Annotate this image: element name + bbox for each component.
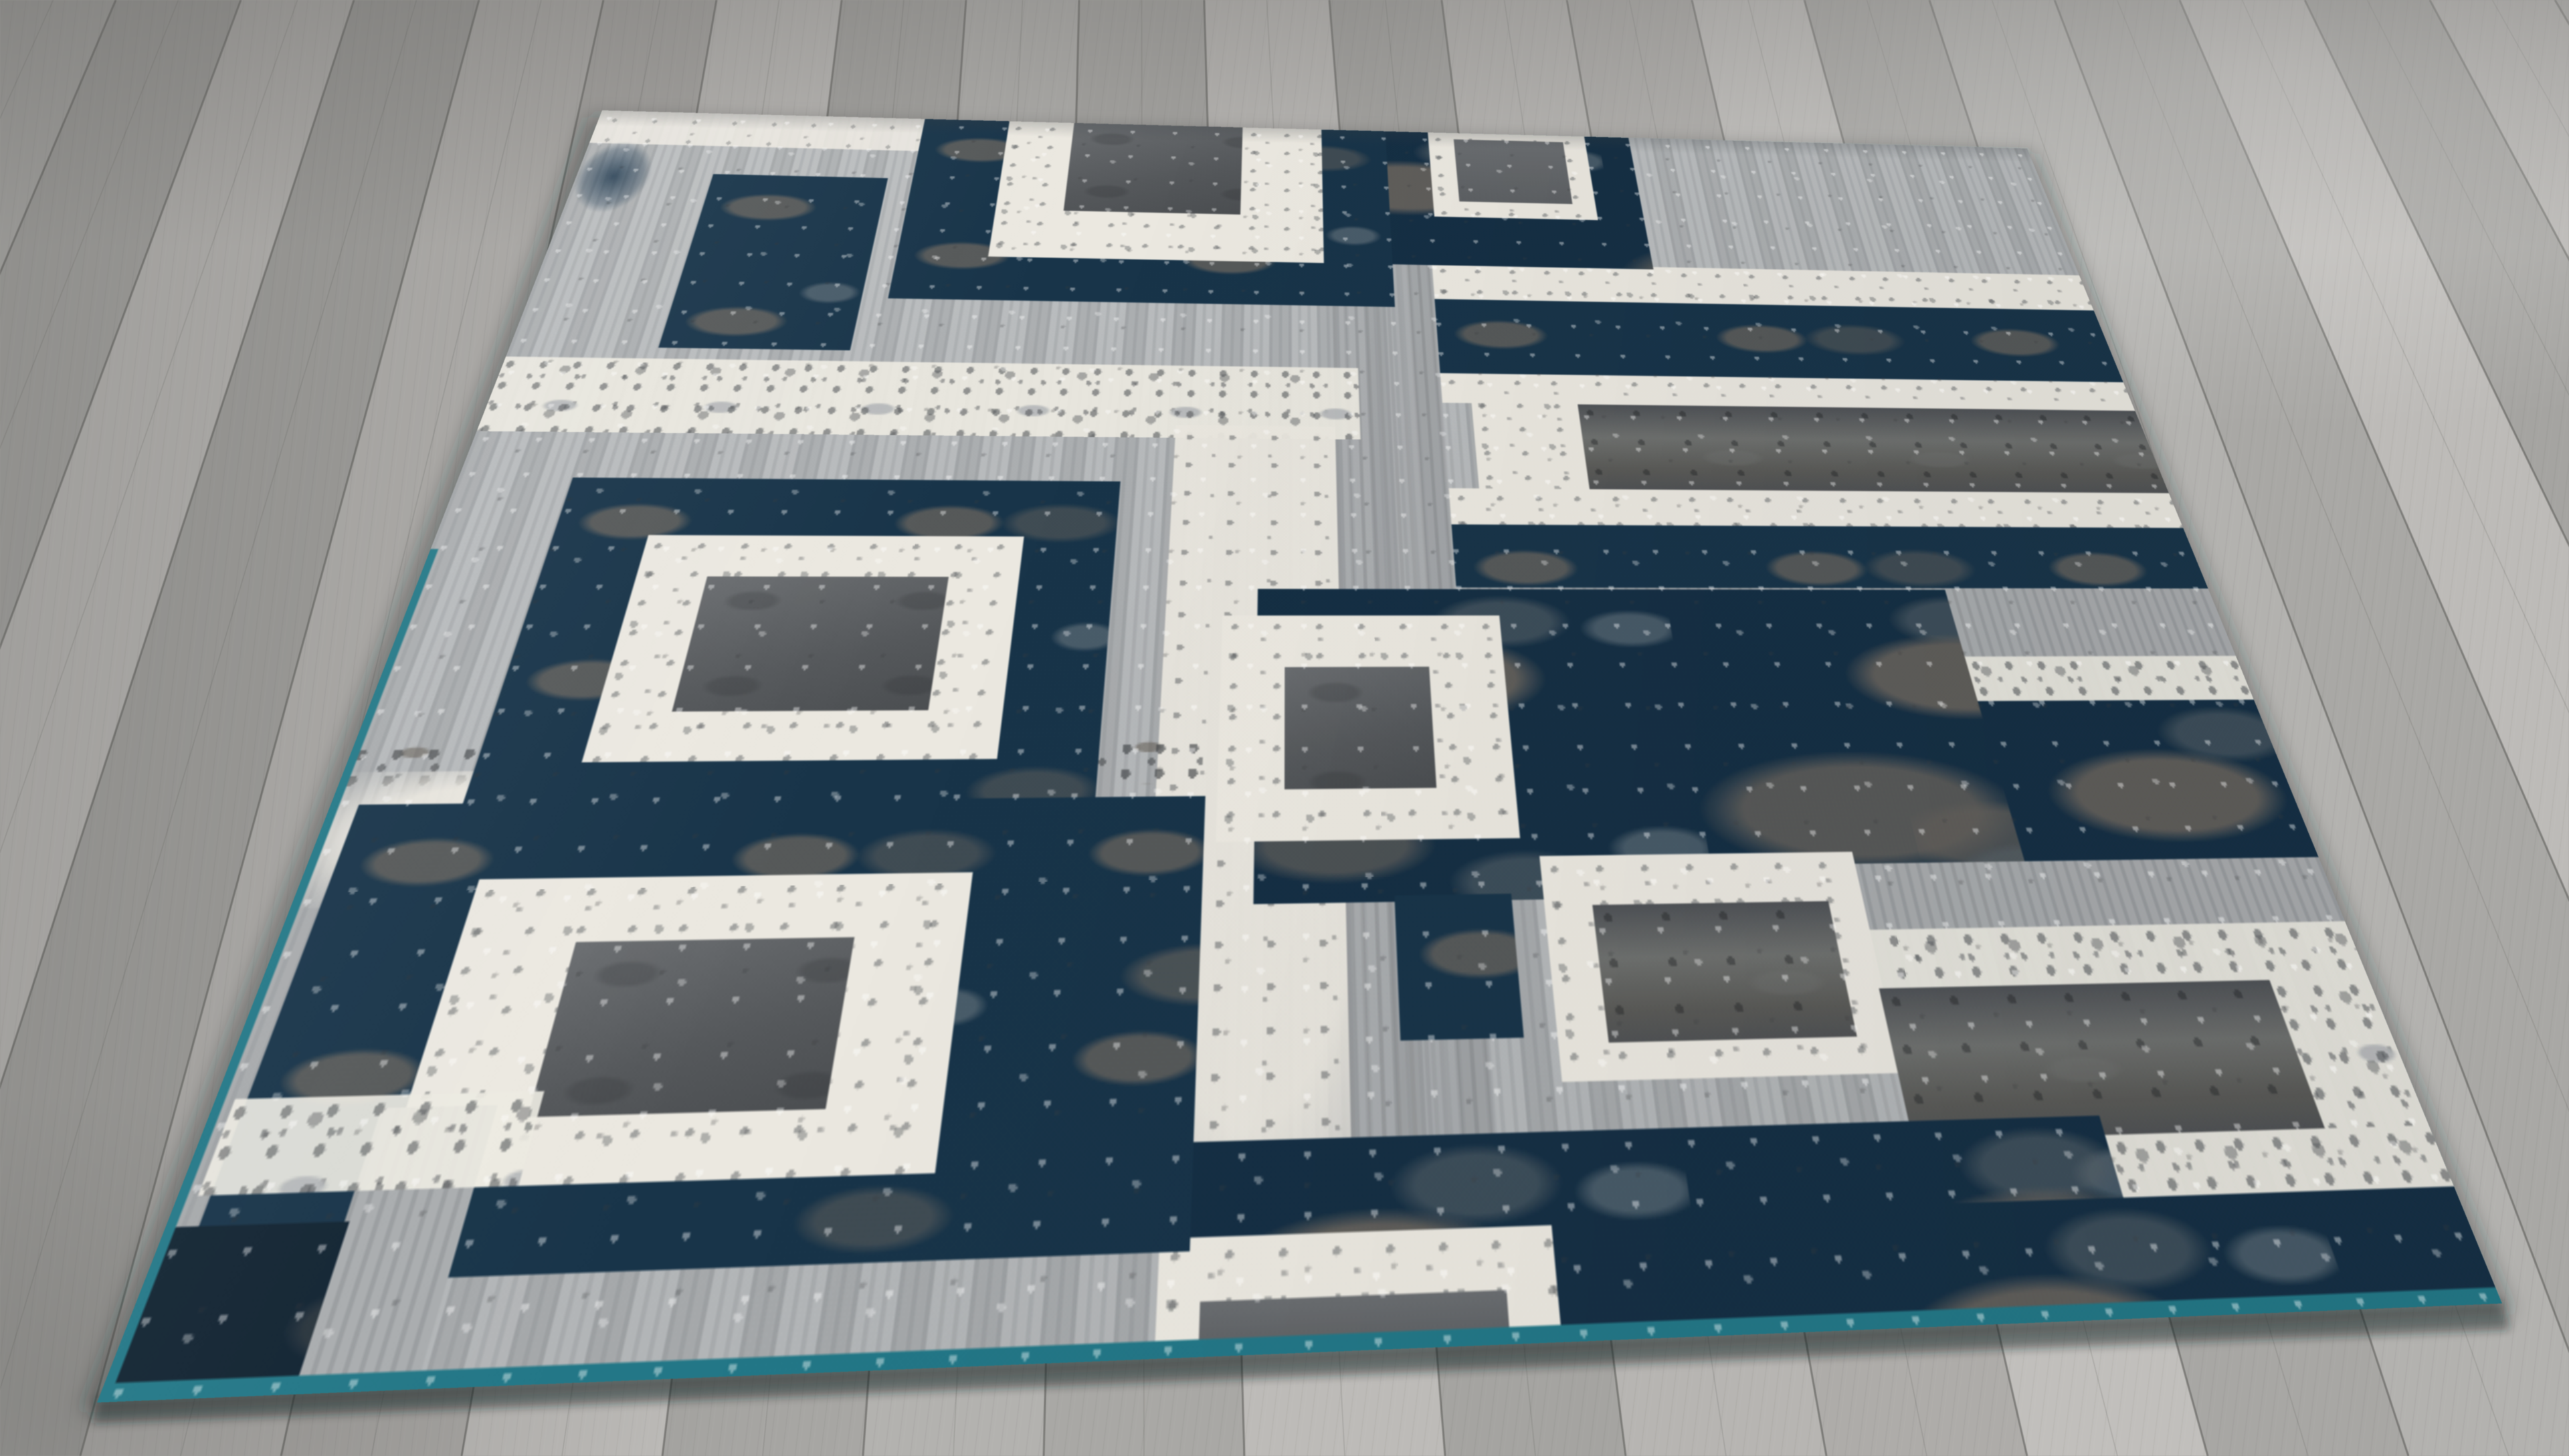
- rug-pattern-block: [198, 1091, 545, 1195]
- rug-pattern-block: [1578, 405, 2169, 494]
- rug-pattern-block: [1454, 139, 1573, 204]
- rug-pattern-block: [1847, 857, 2345, 930]
- scene: [0, 0, 2569, 1456]
- rug-pattern-block: [672, 577, 949, 712]
- rug-pattern-block: [1394, 894, 1523, 1041]
- rug-pattern-block: [1452, 524, 2208, 589]
- rug-pattern-block: [1592, 901, 1857, 1043]
- rug-pattern-block: [1434, 299, 2123, 382]
- rug-pattern-block: [1064, 123, 1243, 215]
- rug-pattern-block: [1879, 980, 2325, 1141]
- rug-pattern-block: [528, 937, 854, 1117]
- rug-pattern-block: [658, 174, 888, 350]
- rug-pattern-block: [1284, 667, 1436, 789]
- rug-pattern-block: [1449, 488, 2184, 528]
